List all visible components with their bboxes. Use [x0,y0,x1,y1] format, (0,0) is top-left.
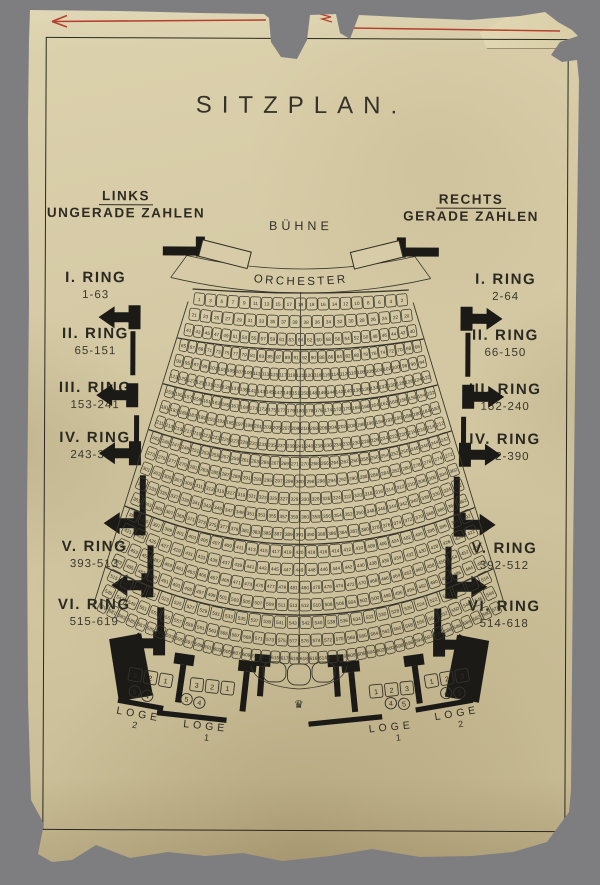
svg-text:97: 97 [193,362,199,368]
svg-text:52: 52 [354,335,360,340]
svg-text:37: 37 [281,319,287,324]
svg-text:26: 26 [370,317,376,322]
svg-text:7: 7 [232,300,235,305]
seat: 479 [277,580,288,593]
svg-text:452: 452 [460,549,470,557]
svg-text:190: 190 [394,415,403,422]
seat: 266 [320,456,330,468]
seat: 567 [229,628,241,642]
seat: 188 [402,409,413,423]
seat: 71 [205,343,215,356]
svg-text:75: 75 [224,350,230,356]
seat: 601 [203,640,214,654]
svg-text:112: 112 [340,371,348,377]
svg-text:505: 505 [242,599,251,605]
svg-text:98: 98 [402,363,408,369]
svg-text:483: 483 [114,558,124,566]
svg-text:78: 78 [362,352,368,358]
svg-text:247: 247 [171,441,180,448]
seat: 208 [310,422,319,434]
svg-text:493: 493 [172,582,181,589]
seat: 221 [201,428,212,442]
seat: 341 [190,495,203,509]
svg-text:114: 114 [331,372,339,377]
seat: 388 [316,527,327,539]
loge-chair-number: 2 [210,684,215,691]
svg-text:136: 136 [361,386,370,392]
seat: 375 [207,517,219,531]
svg-text:28: 28 [359,318,365,323]
seat: 28 [356,313,367,326]
seat: 240 [305,439,314,451]
seat: 133 [213,379,223,392]
seat: 437 [219,555,232,569]
seat: 56 [333,332,342,344]
seat: 537 [248,613,261,626]
svg-text:154: 154 [417,392,426,399]
svg-text:290: 290 [349,475,358,481]
svg-text:512: 512 [301,603,309,608]
svg-text:92: 92 [302,355,308,360]
seat: 600 [384,641,395,655]
svg-text:47: 47 [214,332,220,338]
seat: 279 [177,457,190,471]
svg-text:281: 281 [189,464,198,471]
loge-chair-number: 2 [148,675,153,683]
svg-text:609: 609 [242,652,251,658]
svg-text:187: 187 [188,412,197,419]
svg-text:524: 524 [416,601,425,608]
seat: 317 [225,486,237,499]
seat: 116 [322,368,331,380]
svg-text:558: 558 [405,622,414,629]
seating-plan-drawing: ORCHESTER 135791113151719181614121086422… [89,229,511,751]
seat: 149 [283,386,292,398]
seat: 577 [288,634,299,646]
svg-text:143: 143 [257,389,266,395]
seat: 53 [240,331,249,344]
seat: 491 [158,573,172,588]
seat: 534 [350,612,363,625]
svg-text:36: 36 [315,320,321,325]
seat: 50 [361,330,370,343]
svg-text:129: 129 [196,379,205,386]
svg-text:530: 530 [378,611,387,618]
svg-text:149: 149 [283,390,291,395]
svg-text:99: 99 [202,364,208,370]
svg-text:353: 353 [257,512,266,518]
seat: 205 [272,421,281,433]
svg-text:148: 148 [309,390,317,395]
seat: 416 [317,545,329,558]
seat: 327 [279,492,289,504]
seat: 451 [116,538,131,553]
svg-text:571: 571 [255,636,264,642]
seat: 280 [400,461,412,475]
seat: 326 [321,492,331,505]
svg-text:87: 87 [276,355,282,360]
svg-text:398: 398 [426,527,435,534]
seat: 605 [222,644,233,657]
seat: 602 [375,643,386,657]
seat: 49 [221,329,231,342]
seat: 236 [323,439,332,451]
seat: 346 [375,501,387,515]
svg-text:356: 356 [323,513,332,519]
seat: 140 [344,384,353,397]
svg-text:151: 151 [292,391,300,396]
seat: 443 [257,561,269,574]
seat: 230 [351,436,361,449]
seat: 148 [309,386,317,398]
svg-text:477: 477 [267,584,276,590]
svg-text:220: 220 [398,431,407,438]
svg-text:11: 11 [253,301,258,306]
svg-text:403: 403 [188,534,197,541]
svg-text:61: 61 [279,337,285,342]
svg-text:45: 45 [204,330,210,336]
seat: 498 [380,588,393,602]
seat: 144 [326,385,335,397]
svg-text:388: 388 [317,531,325,536]
svg-text:303: 303 [152,470,161,477]
svg-text:141: 141 [248,388,257,394]
svg-text:272: 272 [444,451,453,458]
seat: 100 [391,360,401,373]
seat: 396 [435,519,449,534]
seat: 616 [309,652,318,664]
svg-text:504: 504 [348,599,357,605]
svg-text:460: 460 [415,566,424,573]
svg-text:124: 124 [413,376,422,383]
svg-text:615: 615 [271,655,280,661]
svg-text:387: 387 [274,531,282,536]
svg-text:169: 169 [240,404,249,410]
seat: 311 [193,479,205,493]
seat: 263 [250,454,260,467]
seat: 38 [301,316,311,328]
seat: 450 [469,540,484,555]
svg-text:577: 577 [289,638,297,643]
seat: 118 [314,368,322,380]
seat: 265 [260,455,270,468]
svg-text:405: 405 [200,537,209,544]
seat: 386 [327,526,338,539]
svg-text:126: 126 [405,378,414,385]
seat: 295 [263,473,274,486]
svg-text:96: 96 [410,361,416,367]
svg-text:568: 568 [347,635,356,641]
svg-text:167: 167 [231,403,240,409]
svg-text:269: 269 [281,461,289,466]
svg-text:8: 8 [367,300,370,305]
seat: 562 [379,624,392,638]
svg-text:163: 163 [212,400,221,406]
svg-text:201: 201 [254,423,263,429]
seat: 536 [338,614,350,627]
seat: 22 [390,310,402,323]
svg-text:288: 288 [359,474,368,480]
svg-text:402: 402 [403,534,412,541]
svg-text:522: 522 [429,596,438,603]
svg-text:228: 228 [361,438,370,444]
seat: 445 [269,562,281,575]
svg-text:193: 193 [216,418,225,424]
svg-text:66: 66 [414,344,420,350]
svg-text:447: 447 [283,567,291,572]
svg-text:316: 316 [375,488,384,494]
seat: 340 [408,493,421,507]
seat: 67 [187,340,197,353]
seat: 24 [379,311,390,324]
svg-text:301: 301 [142,466,151,474]
svg-text:15: 15 [275,302,281,307]
svg-text:445: 445 [271,566,280,572]
seat: 271 [290,457,299,469]
svg-text:464: 464 [392,573,401,580]
seat: 619 [290,652,299,664]
svg-text:62: 62 [307,337,313,342]
seat: 268 [310,457,319,469]
svg-text:421: 421 [123,527,133,535]
svg-text:4: 4 [389,299,392,304]
seat: 91 [292,351,300,363]
svg-text:259: 259 [231,456,240,462]
svg-text:502: 502 [359,597,368,603]
seat: 324 [331,491,342,504]
svg-text:107: 107 [235,369,244,375]
svg-text:89: 89 [285,355,291,360]
svg-text:239: 239 [287,443,295,448]
seat: 80 [352,348,361,361]
plan-content: SITZPLAN. LINKS UNGERADE ZAHLEN RECHTS G… [0,0,600,885]
svg-text:407: 407 [212,540,221,547]
seat: 599 [193,637,205,651]
seat: 406 [376,536,389,550]
svg-text:14: 14 [332,302,338,307]
seat: 4 [385,295,396,308]
svg-text:229: 229 [240,439,249,445]
seat: 96 [408,357,418,370]
svg-text:174: 174 [324,407,332,412]
seat: 272 [442,447,455,462]
svg-text:433: 433 [197,554,206,561]
svg-text:48: 48 [372,334,378,340]
seat: 20 [401,309,413,322]
seat: 46 [379,328,389,341]
svg-text:1: 1 [198,297,201,302]
seat: 336 [429,486,442,501]
svg-text:79: 79 [241,352,247,358]
seat: 484 [462,560,477,575]
seat: 8 [363,296,374,309]
svg-text:355: 355 [268,513,277,519]
seat: 438 [366,556,379,570]
svg-text:297: 297 [275,478,283,483]
seat: 427 [158,538,173,553]
seat: 227 [230,434,240,447]
svg-text:533: 533 [225,613,234,619]
orchestra-label: ORCHESTER [253,273,348,288]
svg-text:412: 412 [343,547,352,553]
loge-number: 2 [457,719,464,730]
seat: 12 [340,297,351,309]
seat: 418 [306,546,317,558]
svg-text:377: 377 [219,524,228,531]
svg-text:249: 249 [181,444,190,451]
seat: 329 [290,493,300,505]
svg-text:103: 103 [218,366,227,372]
seat: 254 [379,448,390,462]
seat: 312 [394,480,406,494]
seat: 431 [182,546,196,561]
seat: 495 [181,581,195,596]
svg-text:117: 117 [279,372,287,377]
svg-text:534: 534 [353,616,362,622]
svg-text:35: 35 [270,319,276,324]
svg-text:342: 342 [399,500,408,507]
seat: 541 [274,616,286,629]
seat: 460 [412,562,426,577]
seat: 251 [190,443,202,457]
seat: 447 [281,563,293,575]
svg-text:439: 439 [234,562,243,568]
seat: 193 [216,414,226,427]
svg-text:415: 415 [260,548,269,554]
svg-text:614: 614 [319,655,327,660]
svg-text:170: 170 [343,406,352,412]
svg-text:463: 463 [187,569,196,576]
svg-text:245: 245 [161,438,170,445]
svg-text:511: 511 [278,602,286,607]
seat: 74 [378,345,387,358]
seat: 77 [231,347,240,360]
svg-text:575: 575 [278,638,286,643]
svg-text:409: 409 [224,542,233,548]
seat: 609 [241,648,251,661]
seat: 192 [383,413,394,426]
seat: 54 [342,332,351,345]
seat: 513 [288,599,299,611]
svg-text:268: 268 [311,461,319,466]
svg-text:19: 19 [298,302,304,307]
svg-text:179: 179 [287,408,295,413]
svg-text:194: 194 [375,419,384,425]
svg-text:69: 69 [198,346,204,352]
seat: 371 [185,511,198,525]
seat: 163 [211,396,222,409]
seat: 379 [229,522,241,536]
seat: 156 [407,391,418,405]
seat: 404 [388,533,402,547]
svg-text:465: 465 [198,572,207,579]
svg-text:618: 618 [300,656,308,661]
loge-stool-number: 4 [144,693,149,701]
seat: 508 [323,598,335,611]
svg-text:43: 43 [195,329,201,335]
svg-text:51: 51 [232,334,238,340]
svg-text:204: 204 [329,425,338,431]
seat: 224 [379,431,390,444]
svg-text:320: 320 [354,492,363,498]
ring-labels-right: I. RING 2-64 II. RING 66-150 III. RING 1… [449,1,565,2]
svg-text:206: 206 [319,425,327,430]
svg-text:347: 347 [224,507,233,513]
seat: 86 [327,350,335,362]
svg-text:171: 171 [249,405,258,411]
seat: 15 [273,298,284,310]
svg-text:397: 397 [152,522,161,530]
svg-text:ORCHESTER: ORCHESTER [253,273,348,288]
seat: 473 [242,577,254,590]
svg-text:266: 266 [321,461,329,466]
seat: 166 [360,399,370,412]
seat: 235 [267,438,276,451]
svg-text:260: 260 [351,458,360,464]
svg-text:287: 287 [221,471,230,477]
svg-text:547: 547 [115,594,125,602]
seat: 476 [322,580,333,593]
svg-text:88: 88 [319,355,325,360]
seat: 226 [369,433,379,446]
svg-text:491: 491 [160,578,169,585]
svg-text:299: 299 [285,479,293,484]
seat: 25 [211,311,222,324]
svg-text:225: 225 [221,436,230,442]
svg-text:300: 300 [296,479,304,484]
svg-text:243: 243 [151,435,160,442]
svg-text:604: 604 [367,649,376,655]
seat: 31 [245,314,256,327]
svg-text:570: 570 [335,636,344,642]
svg-text:468: 468 [369,578,378,584]
seat: 62 [305,333,314,345]
svg-text:224: 224 [380,435,389,441]
svg-text:275: 275 [157,454,166,461]
svg-text:164: 164 [371,402,380,408]
seat: 199 [244,418,254,431]
svg-text:158: 158 [399,397,408,404]
loge-label: LOGE [368,719,414,735]
seat: 383 [251,525,262,538]
svg-text:486: 486 [453,570,462,578]
svg-text:12: 12 [343,301,349,306]
seat: 173 [258,402,267,415]
svg-text:17: 17 [287,302,293,307]
svg-text:246: 246 [420,442,429,449]
svg-text:457: 457 [152,557,161,565]
svg-text:304: 304 [438,471,447,478]
svg-text:302: 302 [449,467,458,475]
separator-line [193,289,409,293]
svg-text:312: 312 [396,484,405,491]
seat: 356 [322,509,333,522]
seat: 357 [278,510,289,522]
svg-text:442: 442 [344,564,353,570]
svg-text:333: 333 [148,485,157,493]
seat: 81 [248,349,257,362]
seat: 131 [204,377,214,390]
svg-text:574: 574 [312,638,320,643]
loge-chair-number: 3 [194,683,199,690]
svg-text:131: 131 [204,381,213,387]
seat: 160 [388,395,399,408]
seat: 57 [259,332,268,344]
seat: 261 [240,453,251,466]
seat: 203 [263,420,272,433]
seat: 490 [427,574,441,589]
seat: 16 [318,298,329,310]
